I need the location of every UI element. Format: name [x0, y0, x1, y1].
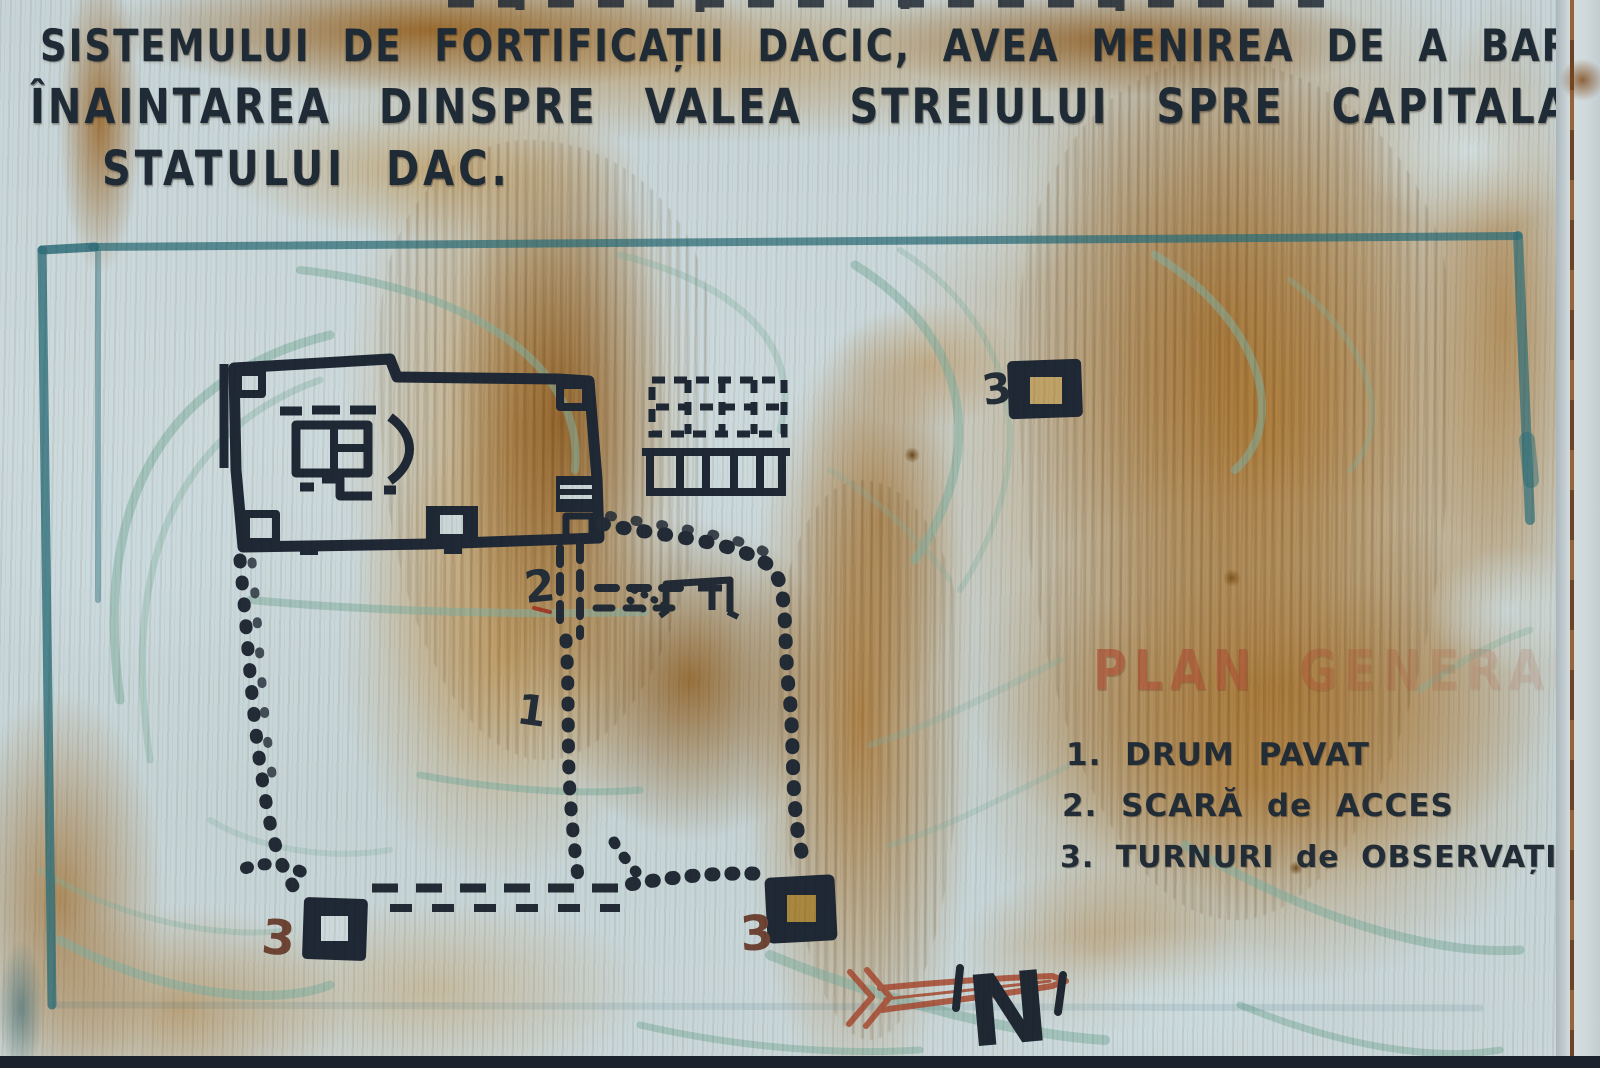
apse-arc — [390, 417, 410, 481]
access-stairs — [560, 545, 682, 636]
north-arrow-icon — [849, 970, 1066, 1026]
dashed-building — [652, 380, 784, 434]
cutoff-text-marks — [448, 0, 1336, 12]
legend-item-number: 1. — [1066, 737, 1101, 773]
legend-item: 1. DRUM PAVAT — [1066, 737, 1370, 773]
map-border — [42, 236, 1531, 1008]
fortress-plan — [224, 359, 599, 555]
corner-room — [560, 385, 586, 407]
legend-item-label: TURNURI de OBSERVAȚIE — [1116, 840, 1579, 875]
rust-streak-column — [780, 480, 960, 1040]
intro-text-line-2: ÎNAINTAREA DINSPRE VALEA STREIULUI SPRE … — [30, 80, 1572, 126]
dashed-wall — [280, 410, 376, 411]
label-tower-bottom-center: 3 — [738, 905, 775, 963]
svg-text:N: N — [962, 950, 1054, 1068]
paved-road-dotted-path — [240, 516, 806, 896]
legend-item-label: DRUM PAVAT — [1125, 737, 1370, 773]
label-paved-road: 1 — [514, 684, 550, 737]
teal-paint-smudge — [0, 930, 70, 1060]
legend-item-number: 3. — [1060, 840, 1094, 875]
intro-text-line-1: SISTEMULUI DE FORTIFICAȚII DACIC, AVEA M… — [40, 20, 1600, 63]
sign-photo: 2 1 3 3 3 N SISTEMULUI DE FORTIFICAȚII D… — [0, 0, 1600, 1068]
legend-item-number: 2. — [1062, 788, 1097, 824]
legend-item: 3. TURNURI de OBSERVAȚIE — [1060, 840, 1579, 875]
legend-item: 2. SCARĂ de ACCES — [1062, 788, 1454, 824]
label-tower-bottom-left: 3 — [259, 909, 297, 968]
inner-building — [296, 425, 368, 473]
label-stairs-tick — [534, 608, 550, 612]
panel-bottom-edge — [0, 1056, 1600, 1068]
corner-room — [246, 514, 276, 542]
room-row-building — [642, 452, 790, 492]
gate-block — [426, 506, 478, 544]
label-tower-top-right: 3 — [979, 363, 1015, 416]
panel-right-edge — [1556, 0, 1600, 1068]
gate-structure — [660, 580, 738, 617]
intro-text-line-3: STATULUI DAC. — [102, 142, 511, 188]
legend-title: PLAN GENERAL — [1093, 638, 1588, 692]
corner-room — [238, 372, 262, 394]
north-letter: N — [956, 950, 1063, 1068]
label-stairs: 2 — [522, 560, 558, 614]
corner-block — [556, 476, 596, 512]
legend-item-label: SCARĂ de ACCES — [1121, 788, 1454, 824]
paved-road-dashes — [372, 888, 628, 908]
rust-streak-column — [380, 140, 710, 760]
corner-room — [566, 516, 592, 538]
lower-annex — [300, 479, 396, 496]
tower-top-right-icon — [1007, 359, 1083, 420]
tower-bottom-center-icon — [764, 874, 837, 944]
tower-bottom-left-icon — [302, 897, 368, 961]
